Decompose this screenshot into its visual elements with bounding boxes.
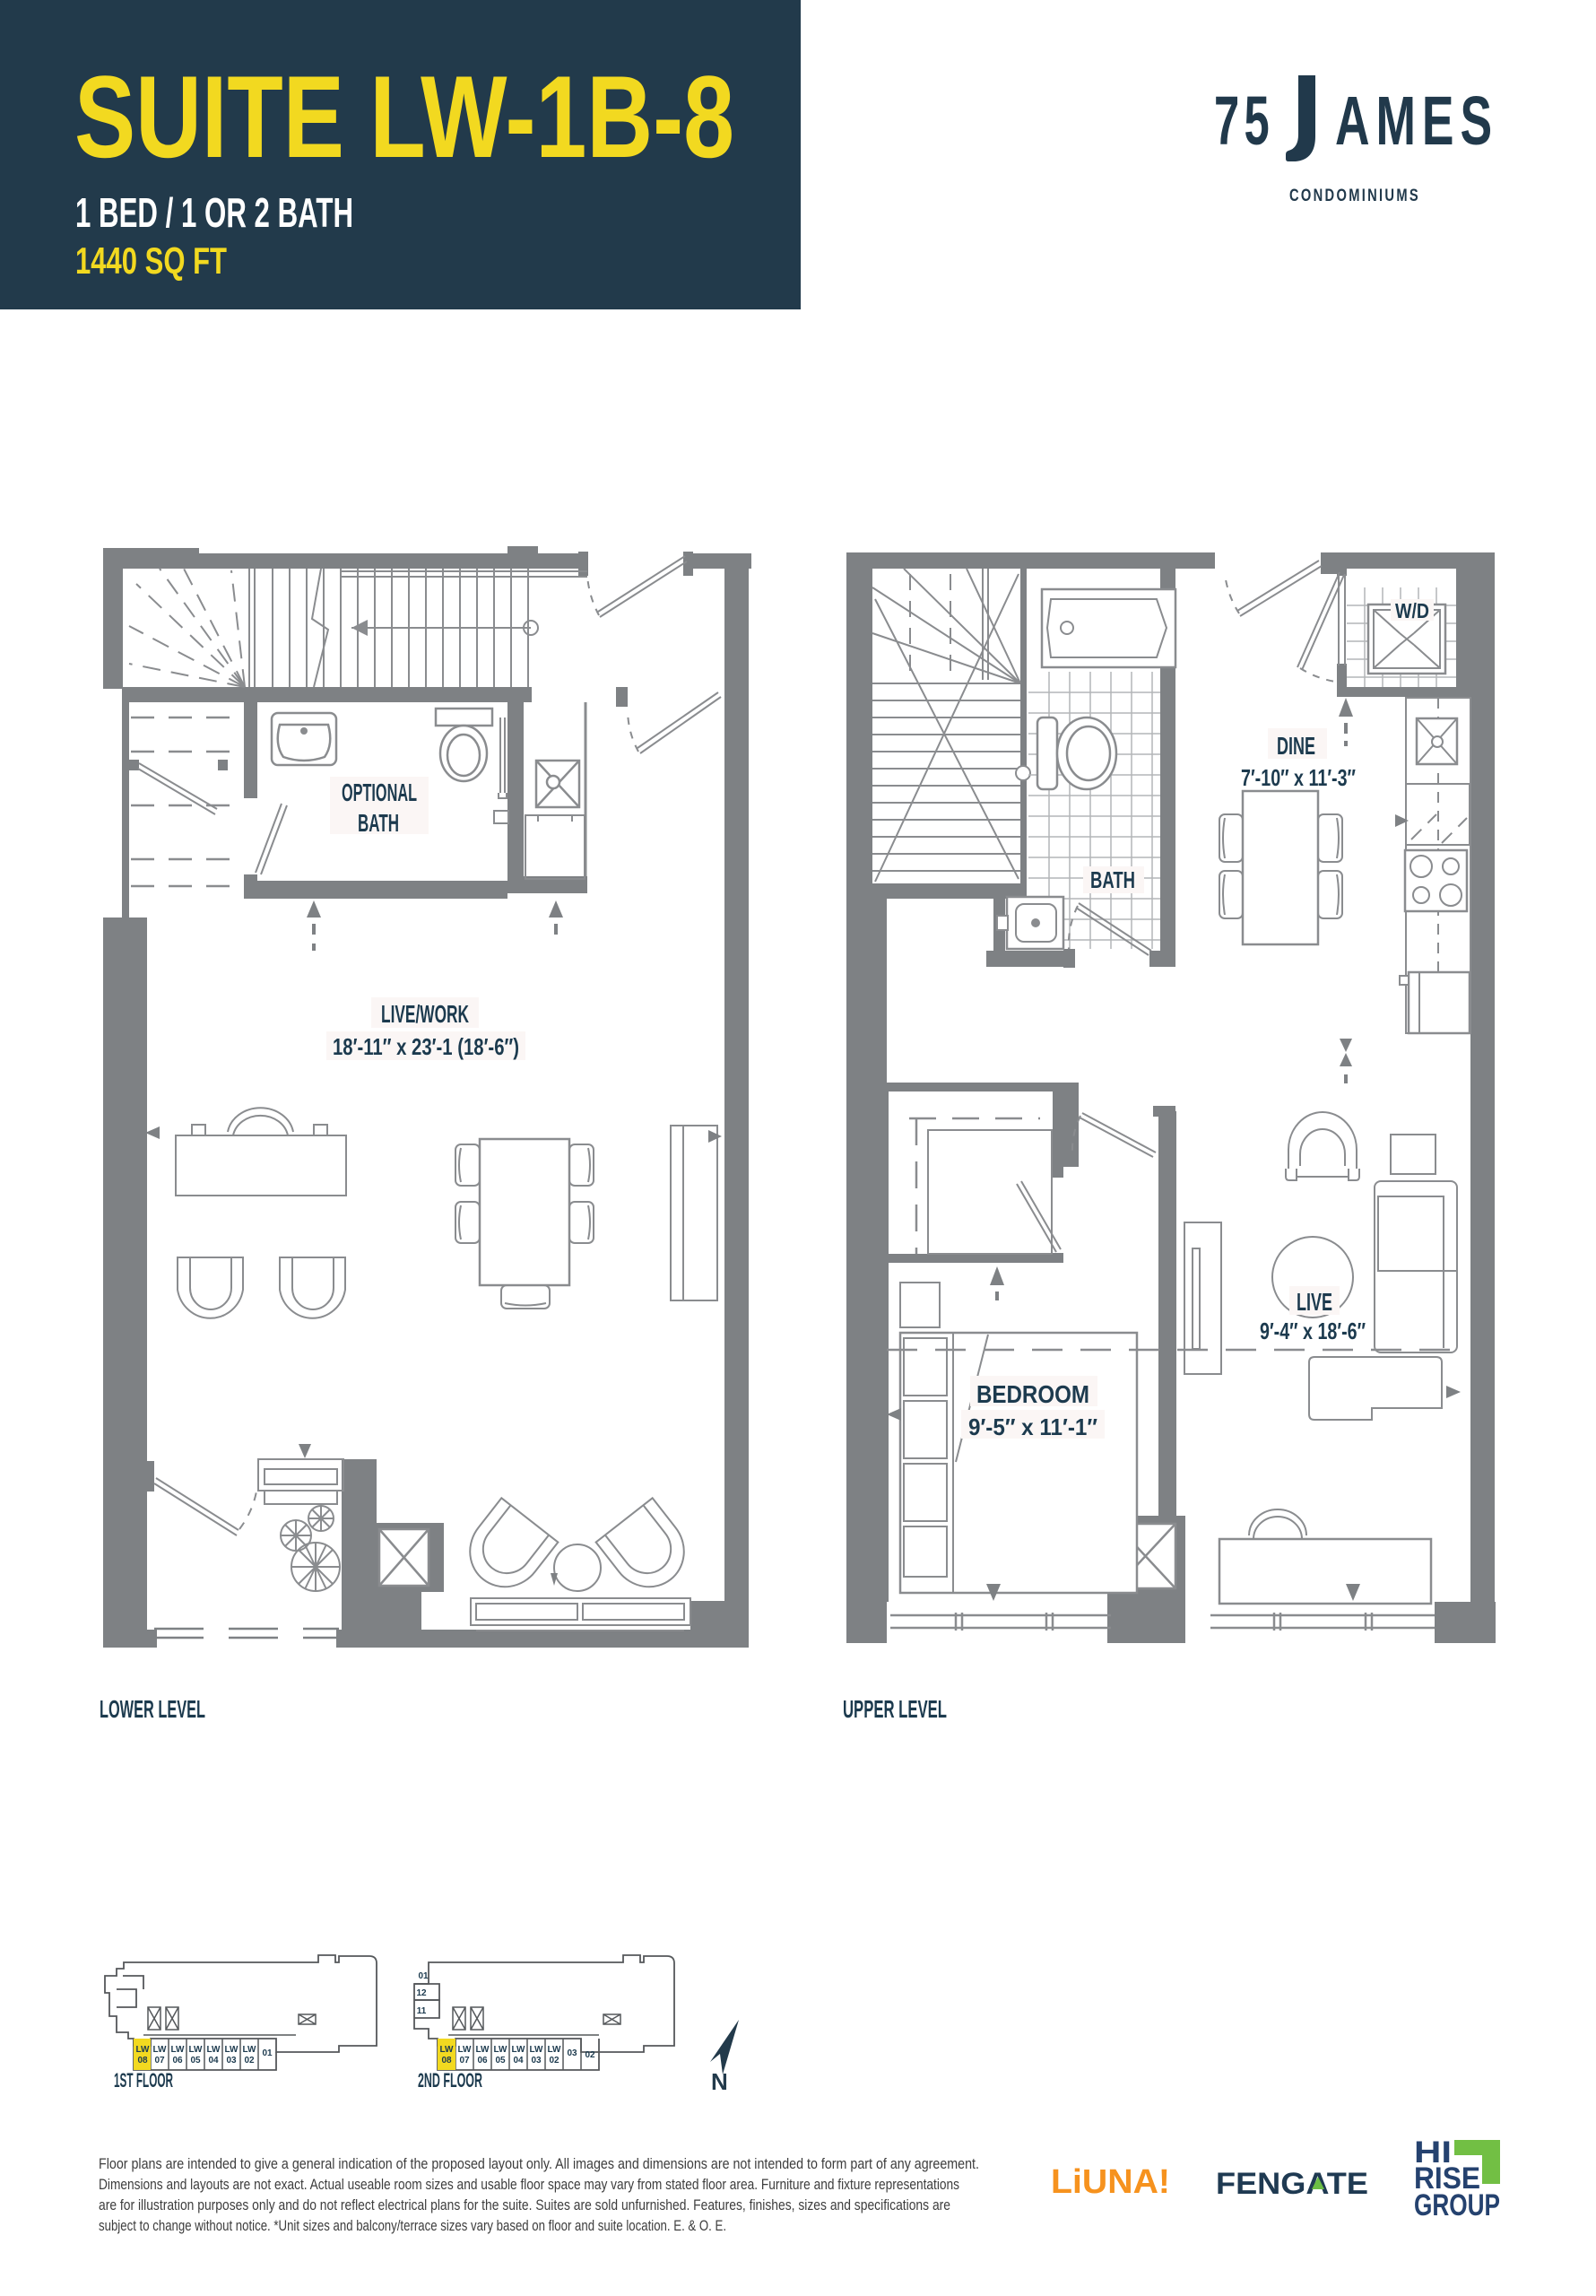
svg-text:subject to change without noti: subject to change without notice. *Unit … [99, 2217, 726, 2234]
svg-text:05: 05 [190, 2056, 201, 2066]
svg-text:11: 11 [417, 2006, 427, 2016]
svg-text:LW: LW [494, 2045, 508, 2055]
svg-text:LOWER LEVEL: LOWER LEVEL [100, 1695, 205, 1723]
svg-text:OPTIONAL: OPTIONAL [342, 778, 417, 806]
svg-text:03: 03 [226, 2056, 237, 2066]
svg-text:LIVE: LIVE [1297, 1288, 1332, 1316]
svg-text:05: 05 [495, 2056, 506, 2066]
svg-text:LW: LW [548, 2045, 562, 2055]
svg-text:08: 08 [137, 2056, 148, 2066]
svg-text:01: 01 [418, 1971, 429, 1981]
svg-text:07: 07 [154, 2056, 165, 2066]
svg-text:75: 75 [1214, 83, 1274, 160]
svg-text:LW: LW [189, 2045, 204, 2055]
svg-text:06: 06 [172, 2056, 183, 2066]
svg-text:AMES: AMES [1335, 83, 1498, 160]
svg-text:LW: LW [458, 2045, 473, 2055]
svg-text:GROUP: GROUP [1414, 2188, 1500, 2222]
svg-text:9′-4″ x 18′-6″: 9′-4″ x 18′-6″ [1260, 1318, 1366, 1344]
svg-text:LW: LW [440, 2045, 455, 2055]
svg-text:02: 02 [549, 2056, 559, 2066]
svg-text:9′-5″ x 11′-1″: 9′-5″ x 11′-1″ [968, 1413, 1097, 1440]
svg-text:03: 03 [531, 2056, 542, 2066]
svg-text:1440 SQ FT: 1440 SQ FT [75, 239, 227, 282]
svg-text:LW: LW [530, 2045, 544, 2055]
svg-text:BATH: BATH [1090, 866, 1135, 893]
svg-text:BEDROOM: BEDROOM [976, 1380, 1089, 1408]
svg-text:06: 06 [477, 2056, 488, 2066]
svg-text:CONDOMINIUMS: CONDOMINIUMS [1289, 187, 1420, 205]
svg-text:LW: LW [476, 2045, 490, 2055]
svg-text:LW: LW [171, 2045, 186, 2055]
svg-text:LiUNA!: LiUNA! [1051, 2163, 1170, 2201]
svg-text:UPPER LEVEL: UPPER LEVEL [843, 1695, 947, 1723]
svg-text:03: 03 [567, 2048, 577, 2058]
svg-text:07: 07 [459, 2056, 470, 2066]
svg-text:SUITE LW-1B-8: SUITE LW-1B-8 [74, 51, 734, 182]
svg-text:W/D: W/D [1395, 599, 1429, 622]
svg-text:04: 04 [208, 2056, 219, 2066]
svg-text:LIVE/WORK: LIVE/WORK [381, 1000, 469, 1028]
svg-text:1 BED / 1 OR 2 BATH: 1 BED / 1 OR 2 BATH [75, 189, 353, 236]
svg-text:LW: LW [243, 2045, 257, 2055]
svg-text:2ND FLOOR: 2ND FLOOR [418, 2069, 482, 2092]
svg-text:04: 04 [513, 2056, 524, 2066]
svg-text:LW: LW [153, 2045, 168, 2055]
svg-text:N: N [711, 2068, 728, 2095]
svg-text:FENGATE: FENGATE [1216, 2167, 1368, 2201]
svg-text:LW: LW [136, 2045, 151, 2055]
svg-text:BATH: BATH [358, 809, 399, 837]
svg-text:18′-11″ x 23′-1 (18′-6″): 18′-11″ x 23′-1 (18′-6″) [333, 1033, 519, 1060]
svg-text:LW: LW [512, 2045, 526, 2055]
svg-text:7′-10″ x 11′-3″: 7′-10″ x 11′-3″ [1241, 764, 1356, 791]
svg-text:are for illustration purposes: are for illustration purposes only and d… [99, 2196, 950, 2213]
svg-text:Dimensions and layouts are not: Dimensions and layouts are not exact. Ac… [99, 2176, 959, 2193]
svg-text:02: 02 [585, 2050, 595, 2060]
svg-text:12: 12 [416, 1988, 427, 1998]
svg-text:LW: LW [225, 2045, 239, 2055]
svg-text:1ST FLOOR: 1ST FLOOR [114, 2069, 173, 2092]
svg-text:LW: LW [207, 2045, 221, 2055]
svg-text:02: 02 [244, 2056, 255, 2066]
svg-text:01: 01 [262, 2048, 273, 2058]
svg-text:08: 08 [441, 2056, 452, 2066]
svg-text:Floor plans are intended to gi: Floor plans are intended to give a gener… [99, 2155, 979, 2172]
svg-text:DINE: DINE [1277, 732, 1315, 760]
